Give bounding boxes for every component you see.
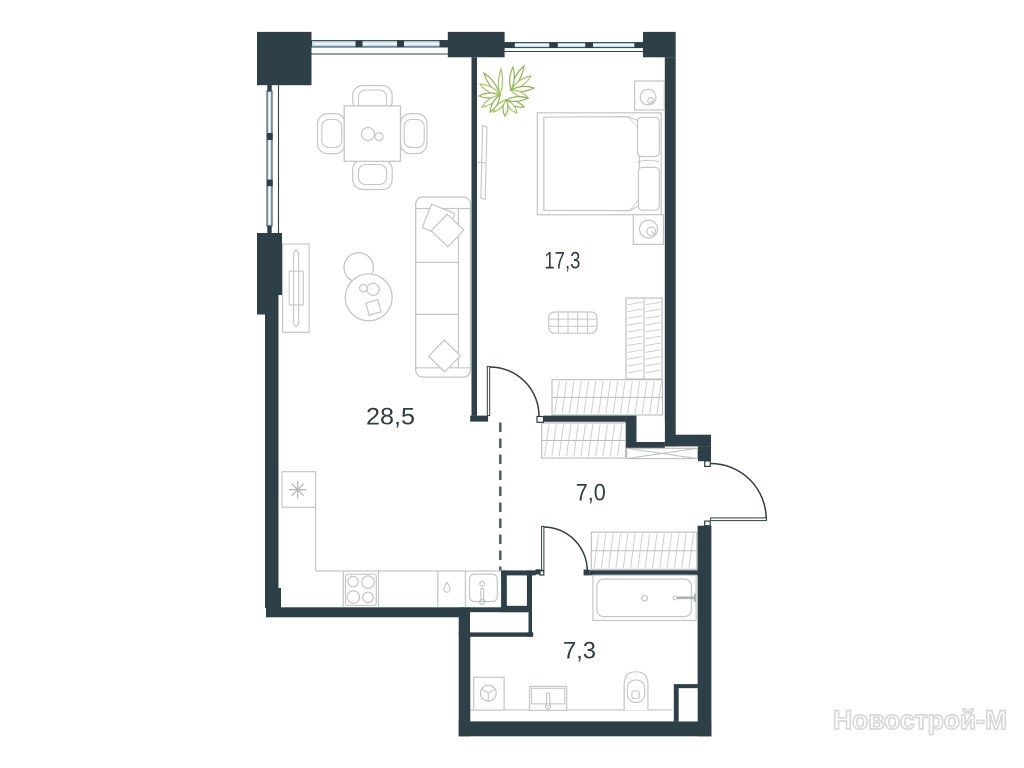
svg-text:28,5: 28,5 xyxy=(366,404,415,431)
svg-text:7,0: 7,0 xyxy=(576,480,606,507)
svg-text:17,3: 17,3 xyxy=(544,248,580,275)
svg-text:Новострой-М: Новострой-М xyxy=(833,705,1007,735)
svg-text:7,3: 7,3 xyxy=(563,638,596,665)
